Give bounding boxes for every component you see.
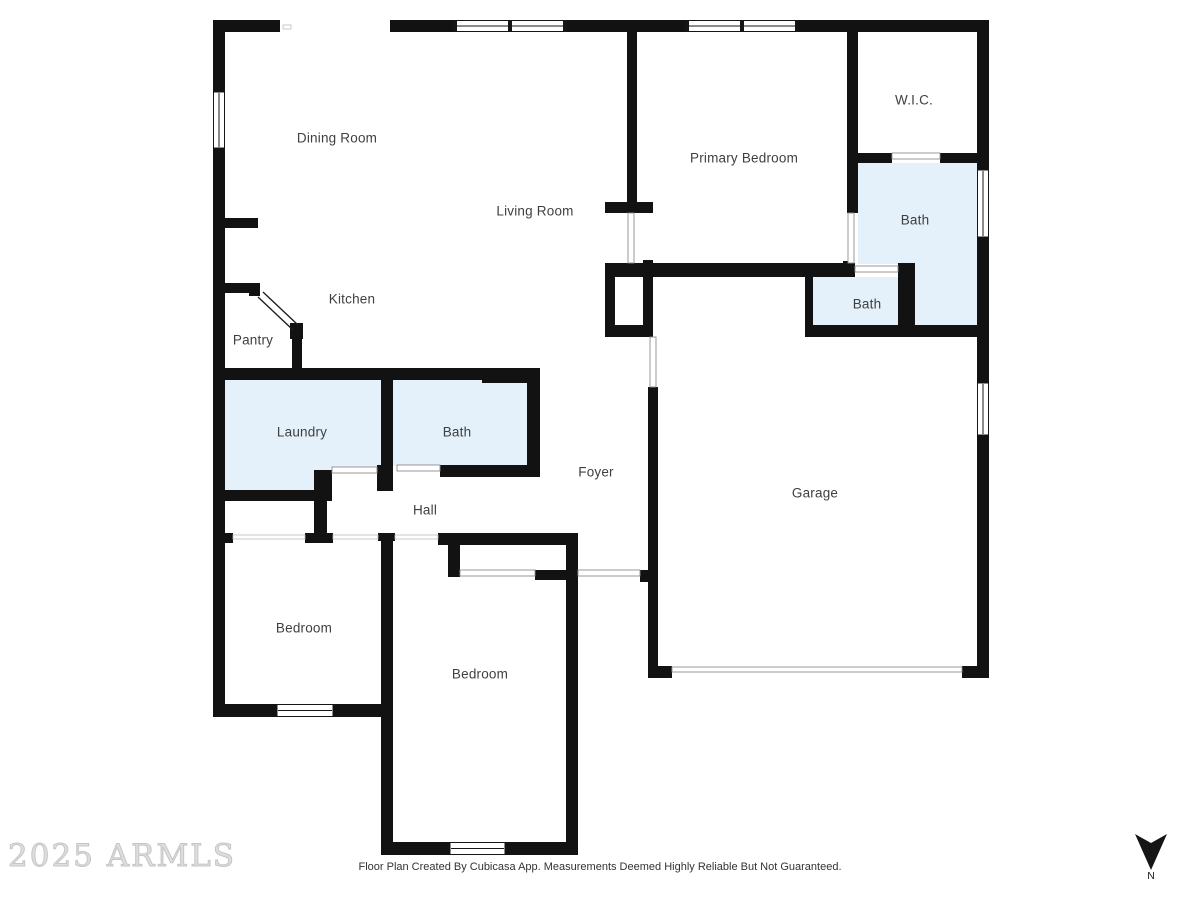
window-bedroom-left — [277, 705, 333, 717]
footer-disclaimer: Floor Plan Created By Cubicasa App. Meas… — [0, 861, 1200, 873]
closet-opening — [233, 535, 305, 539]
window-right-wall-lower — [978, 383, 989, 435]
room-label-living-room: Living Room — [496, 204, 573, 219]
room-label-bath-hall: Bath — [443, 425, 472, 440]
window-top-right — [685, 20, 799, 32]
garage-entry-door — [650, 337, 656, 387]
patio-edge-line — [283, 25, 291, 29]
water-closet-door — [855, 266, 898, 272]
laundry-door — [332, 467, 377, 473]
garage-overhead-door — [672, 667, 962, 672]
room-label-dining-room: Dining Room — [297, 131, 377, 146]
room-label-kitchen: Kitchen — [329, 292, 375, 307]
primary-bedroom-door — [628, 213, 634, 263]
room-label-wic: W.I.C. — [895, 93, 933, 108]
north-label: N — [1147, 870, 1155, 882]
window-right-wall-upper — [978, 170, 989, 237]
room-label-bath-water-closet: Bath — [853, 297, 882, 312]
bedroom-closet-door — [460, 570, 535, 576]
primary-bath-door — [848, 213, 854, 263]
bedroom-middle-doorway — [395, 535, 438, 539]
room-label-foyer: Foyer — [578, 465, 614, 480]
hall-bath-door — [397, 465, 440, 471]
wic-door — [892, 153, 940, 159]
room-label-garage: Garage — [792, 486, 838, 501]
window-left-wall — [214, 92, 225, 148]
window-bedroom-middle — [450, 843, 505, 855]
room-label-hall: Hall — [413, 503, 437, 518]
room-label-bath-primary: Bath — [901, 213, 930, 228]
bedroom-left-doorway — [333, 535, 378, 539]
room-label-laundry: Laundry — [277, 425, 327, 440]
floorplan-page: Dining Room Kitchen Pantry Living Room P… — [0, 0, 1200, 900]
room-label-pantry: Pantry — [233, 333, 273, 348]
window-top-left — [453, 20, 567, 32]
room-label-bedroom-left: Bedroom — [276, 621, 332, 636]
room-label-primary-bedroom: Primary Bedroom — [690, 151, 798, 166]
rear-door — [578, 570, 640, 576]
floorplan-graphic — [0, 0, 1200, 900]
room-label-bedroom-middle: Bedroom — [452, 667, 508, 682]
